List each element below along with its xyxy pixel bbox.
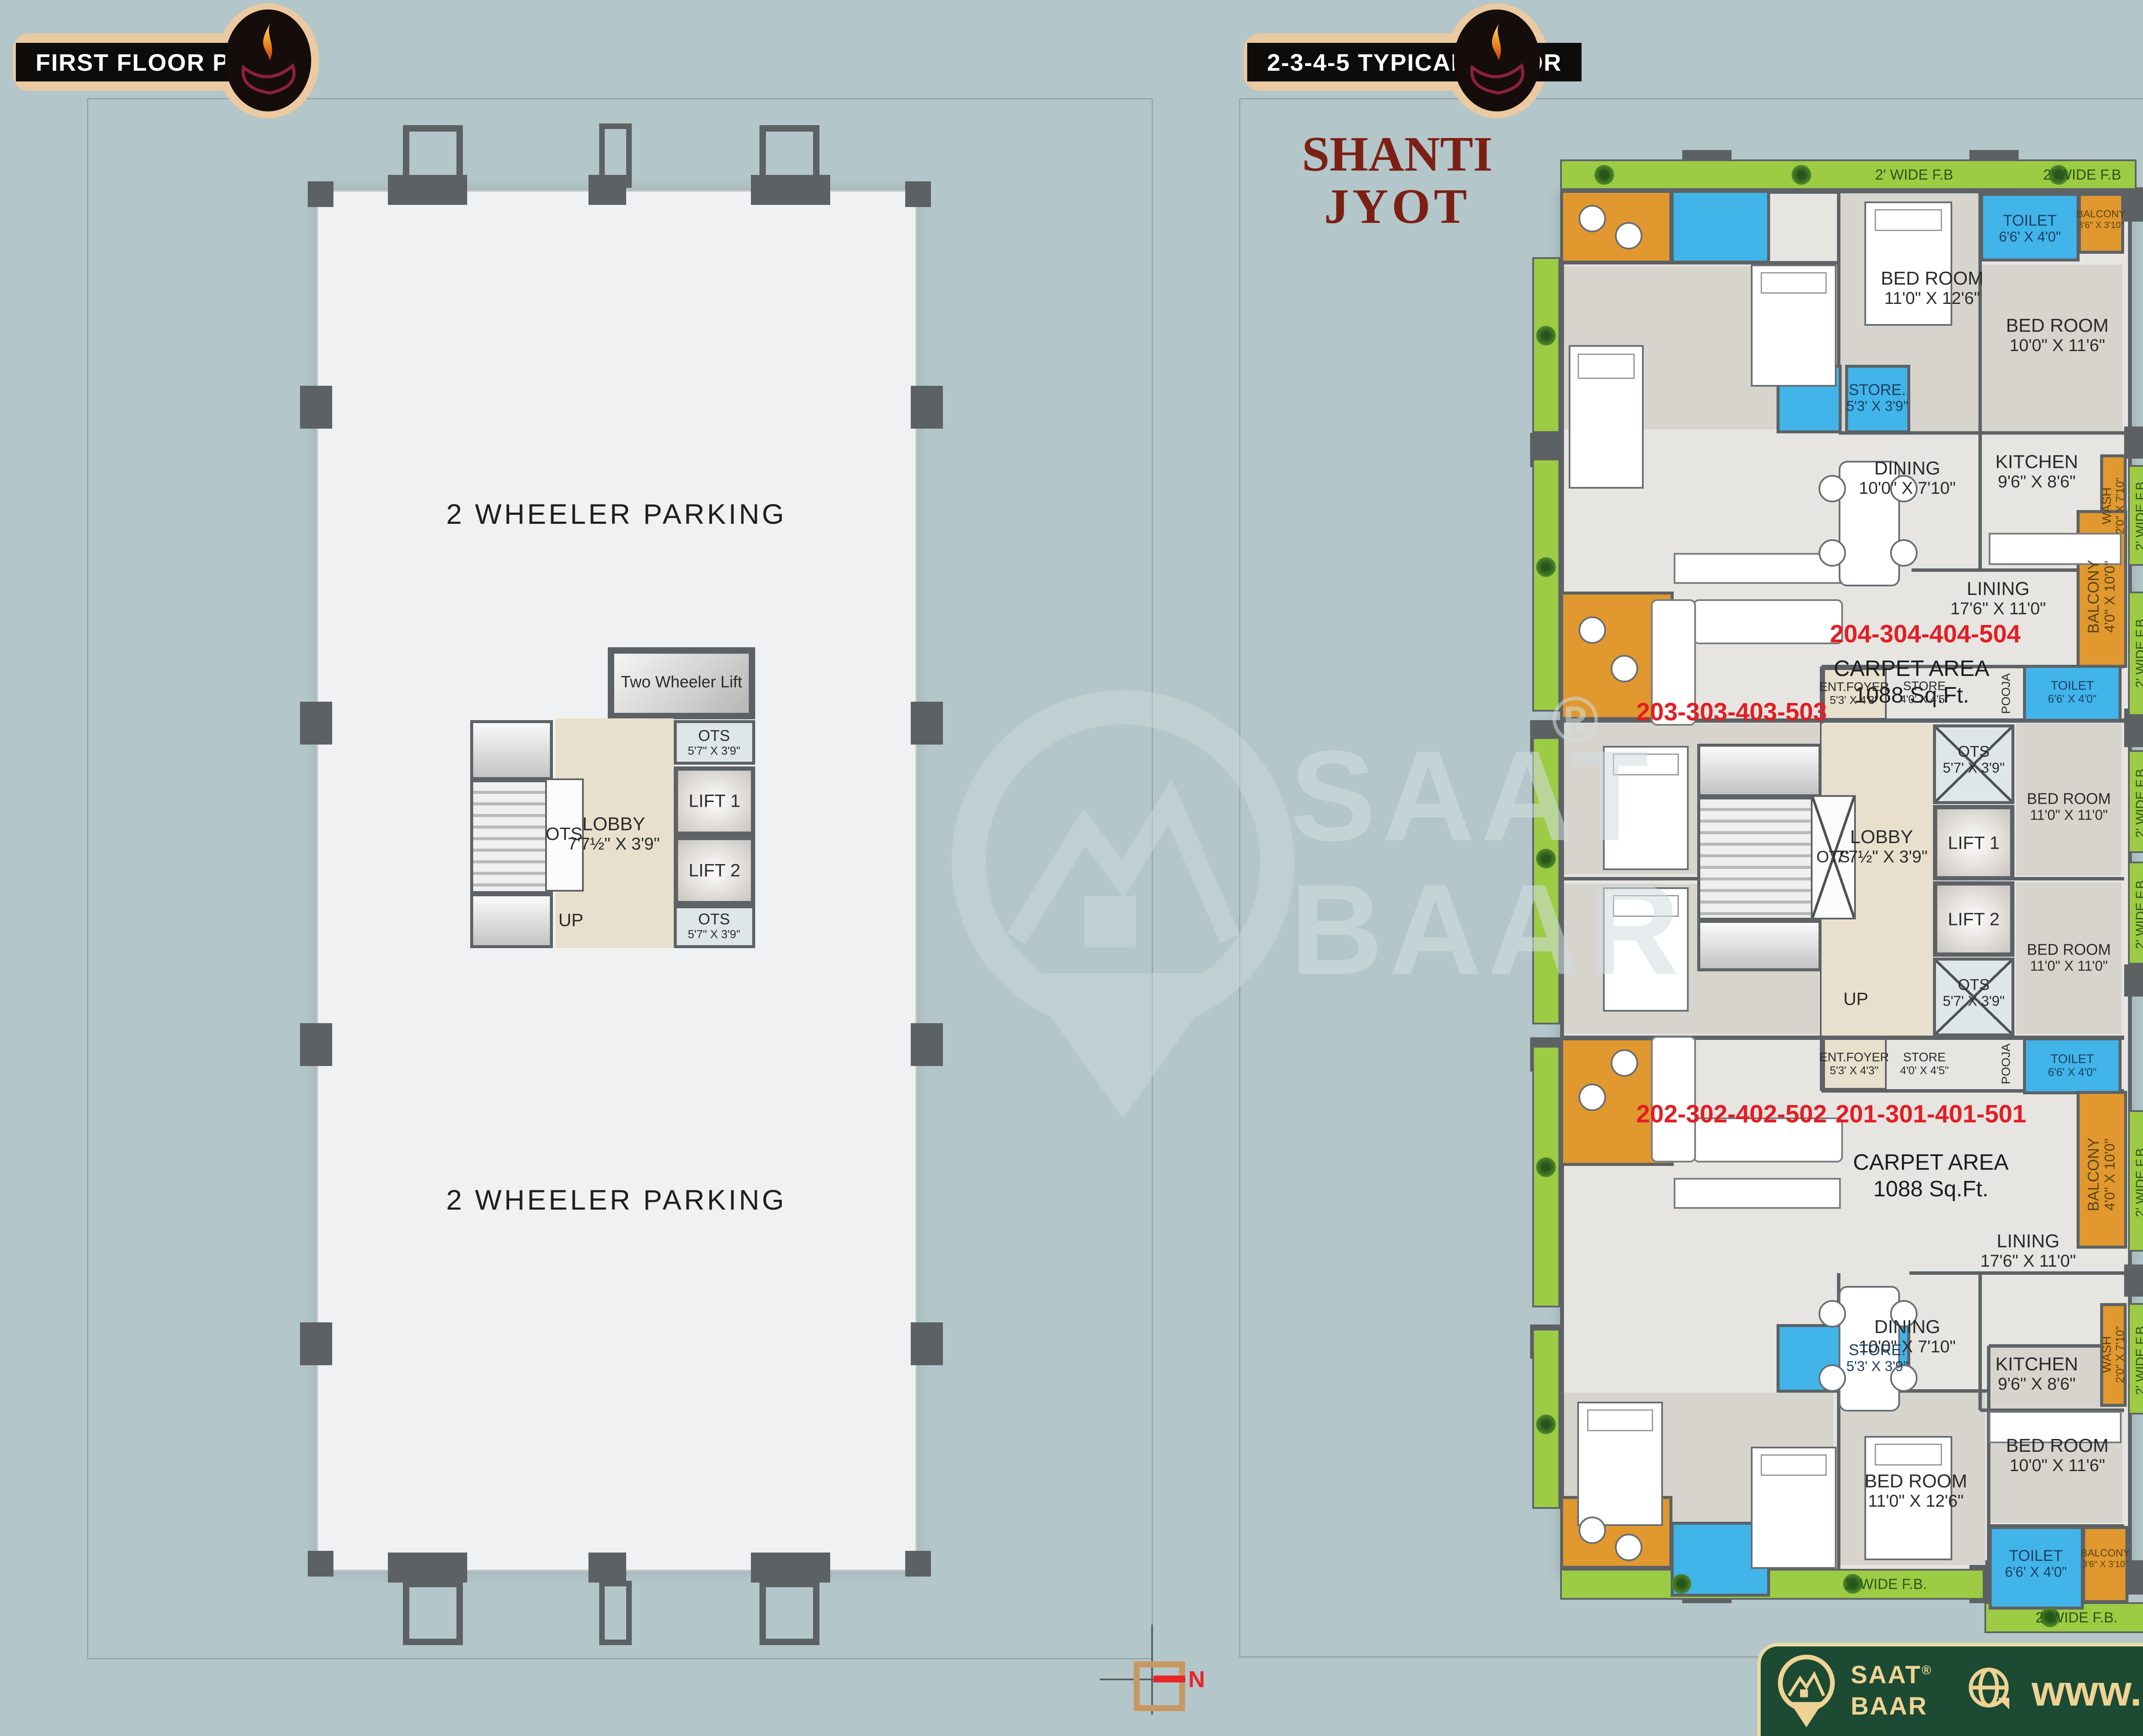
lift1-label: LIFT 1 [689, 790, 741, 811]
two-wheeler-lift-label-1: Two [621, 673, 651, 691]
toilet-mid-bottom-dim: 6'6' X 4'0" [2048, 1066, 2097, 1079]
kitchen-bottom-dim: 9'6" X 8'6" [1995, 1375, 2078, 1394]
ots-core-top-dim: 5'7' X 3'9" [1943, 760, 2005, 776]
fb-label-bottom-2: 2' WIDE F.B. [2035, 1610, 2118, 1626]
toilet-mid-top-label: TOILET [2048, 679, 2097, 693]
lining-bottom-dim: 17'6" X 11'0" [1980, 1252, 2076, 1271]
sofa [1651, 1036, 1696, 1162]
bedroom-204a-label: BED ROOM [1881, 268, 1984, 289]
column [751, 1553, 830, 1583]
apartment-203-number: 203-303-403-503 [1636, 699, 1827, 727]
stair-landing-top [470, 720, 553, 780]
balcony-chair [1615, 1534, 1642, 1561]
store-small-top-dim: 4'0' X 4'5" [1900, 694, 1949, 706]
bedroom-204a-dim: 11'0" X 12'6" [1881, 289, 1984, 308]
balcony-big-top-label: BALCONY [2085, 560, 2102, 634]
bed [1603, 887, 1689, 1012]
toilet-top-left [1671, 190, 1770, 264]
store-small-bottom-dim: 4'0' X 4'5" [1900, 1065, 1949, 1077]
flower-bed-left-3 [1532, 737, 1560, 1024]
fb-right-6: 2' WIDE F.B. [2134, 1322, 2143, 1395]
column [905, 1551, 931, 1577]
plant-icon [1536, 1157, 1556, 1177]
plant-icon [1536, 1415, 1556, 1434]
two-wheeler-lift-label-3: Lift [720, 673, 742, 691]
balcony-chair [1611, 655, 1638, 682]
balcony-bottom-dim: 3'6" X 3'10" [2081, 1559, 2130, 1570]
plant-icon [1792, 165, 1811, 185]
chair [1819, 1364, 1846, 1392]
column [911, 1023, 943, 1066]
ent-foyer-bottom-dim: 5'3' X 4'3" [1819, 1065, 1889, 1077]
toilet-tr-label: TOILET [1999, 212, 2061, 229]
floor-plan-sheet: FIRST FLOOR PLAN 2-3-4-5 TYPICAL FLOOR S… [0, 0, 2143, 1736]
wash-top-dim: 2'0" X 7'10" [2114, 478, 2127, 534]
column [300, 386, 332, 429]
bedroom-204b-label: BED ROOM [2006, 315, 2109, 336]
column-outline [599, 1581, 632, 1645]
column [300, 1023, 332, 1066]
store-top-dim: 5'3' X 3'9" [1846, 399, 1908, 414]
store-bottom-label: STORE. [1846, 1341, 1908, 1358]
balcony-big-bottom-dim: 4'0" X 10'0" [2102, 1138, 2118, 1211]
store-bottom-dim: 5'3' X 3'9" [1846, 1359, 1908, 1375]
balcony-chair [1611, 1049, 1638, 1077]
kitchen-counter [1674, 1178, 1841, 1209]
footer-brand-line2: BAAR [1851, 1692, 1928, 1720]
column [2124, 426, 2143, 459]
plant-icon [1594, 165, 1614, 185]
brand-line2: JYOT [1324, 179, 1470, 234]
chair [1819, 475, 1846, 502]
ots-bottom-dim: 5'7" X 3'9" [688, 928, 741, 941]
fb-right-2: 2' WIDE F.B. [2134, 615, 2143, 688]
column [300, 1322, 332, 1365]
fb-right-4: 2' WIDE F.B. [2134, 877, 2143, 949]
stair-landing-top-right [1697, 744, 1822, 797]
column [308, 181, 333, 207]
column-outline [403, 125, 463, 189]
balcony-chair [1579, 205, 1606, 232]
balcony-big-bottom-label: BALCONY [2085, 1138, 2102, 1211]
ots-core-bottom-dim: 5'7' X 3'9" [1943, 994, 2005, 1009]
ots-core-bottom-label: OTS [1943, 976, 2005, 993]
bedroom-core-bottom-label: BED ROOM [2027, 941, 2111, 958]
chair [1819, 1300, 1846, 1328]
fb-right-5: 2' WIDE F.B. [2134, 1144, 2143, 1217]
ent-foyer-bottom-label: ENT.FOYER [1819, 1051, 1889, 1064]
fb-label-top-2: 2' WIDE F.B [2043, 167, 2121, 183]
lift2-label: LIFT 2 [689, 860, 741, 880]
lift1-right-label: LIFT 1 [1948, 832, 2000, 853]
pooja-top-label: POOJA [1999, 673, 2012, 714]
brand-line1: SHANTI [1302, 127, 1493, 182]
toilet-tr-dim: 6'6' X 4'0" [1999, 229, 2061, 245]
bedroom-core-top-dim: 11'0" X 11'0" [2027, 808, 2111, 823]
diya-lamp-icon [1453, 9, 1541, 114]
fb-label-bottom-1: 2' WIDE F.B. [1845, 1576, 1927, 1592]
column-outline [599, 123, 632, 188]
bedroom-201a-label: BED ROOM [1864, 1471, 1967, 1492]
fb-right-1: 2' WIDE F.B. [2134, 478, 2143, 550]
balcony-chair [1615, 222, 1642, 249]
balcony-big-top-dim: 4'0" X 10'0" [2102, 560, 2118, 634]
lift2-right-label: LIFT 2 [1948, 909, 2000, 929]
balcony-top-left [1560, 190, 1672, 264]
balcony-chair [1579, 1517, 1606, 1544]
balcony-tr-dim: 3'6" X 3'10" [2077, 220, 2126, 231]
column [2124, 187, 2143, 222]
toilet-bottom-label: TOILET [2005, 1547, 2067, 1564]
ots-bottom-label: OTS [688, 911, 741, 928]
registered-icon: ® [1922, 1664, 1933, 1678]
stair-landing-bottom-right [1697, 920, 1822, 971]
column [2124, 1264, 2143, 1297]
ots-top-dim: 5'7" X 3'9" [688, 745, 741, 757]
bedroom-201a-dim: 11'0" X 12'6" [1864, 1492, 1967, 1511]
bedroom-core-bottom-dim: 11'0" X 11'0" [2027, 958, 2111, 974]
ots-stairs-right-label: OTS [1816, 848, 1850, 867]
column-outline [759, 1581, 819, 1645]
toilet-mid-bottom-label: TOILET [2048, 1052, 2097, 1066]
store-top-label: STORE. [1846, 381, 1908, 398]
diya-lamp-icon [224, 9, 312, 114]
chair [1890, 539, 1918, 567]
column [388, 1553, 467, 1583]
ent-foyer-top-label: ENT.FOYER [1819, 680, 1889, 694]
footer-brand-line1: SAAT [1851, 1661, 1922, 1689]
north-compass-icon [1134, 1661, 1185, 1711]
fb-label-top-1: 2' WIDE F.B [1875, 167, 1953, 183]
column [300, 702, 332, 745]
flower-bed-left-2 [1532, 459, 1560, 712]
column [588, 1553, 626, 1583]
up-right-label: UP [1843, 988, 1868, 1009]
two-wheeler-lift-label-2: Wheeler [655, 673, 716, 691]
toilet-mid-top-dim: 6'6' X 4'0" [2048, 693, 2097, 706]
bedroom-204b-dim: 10'0" X 11'6" [2006, 336, 2109, 355]
parking-label-bottom: 2 WHEELER PARKING [446, 1184, 786, 1216]
dining-bottom-label: DINING [1859, 1316, 1956, 1337]
staircase [470, 779, 553, 894]
balcony-chair [1579, 1084, 1606, 1111]
wall [2014, 877, 2124, 880]
bedroom-core-top-label: BED ROOM [2027, 790, 2111, 807]
column-outline [403, 1581, 463, 1645]
carpet-area-201: CARPET AREA [1853, 1150, 2008, 1175]
lining-top-label: LINING [1950, 578, 2046, 599]
chair [1819, 539, 1846, 567]
globe-icon [1963, 1663, 2014, 1717]
column [308, 1551, 333, 1577]
kitchen-top-dim: 9'6" X 8'6" [1995, 472, 2078, 492]
north-arrow-icon [1153, 1676, 1185, 1682]
dining-top-dim: 10'0" X 7'10" [1859, 479, 1956, 498]
fb-right-3: 2' WIDE F.B. [2134, 765, 2143, 838]
column [911, 1322, 943, 1365]
column [905, 181, 931, 207]
bed [1603, 746, 1689, 870]
wash-bottom-label: WASH [2100, 1326, 2114, 1383]
plant-icon [1536, 326, 1556, 345]
north-label: N [1189, 1667, 1205, 1692]
ent-foyer-top-dim: 5'3' X 4'3" [1819, 694, 1889, 707]
kitchen-top-label: KITCHEN [1995, 451, 2078, 472]
bed [1751, 264, 1837, 387]
kitchen-counter [1674, 553, 1841, 584]
pooja-bottom-label: POOJA [1999, 1044, 2012, 1084]
column [911, 386, 943, 429]
store-small-top-label: STORE [1900, 679, 1949, 693]
staircase-right [1697, 796, 1822, 921]
bed [1751, 1447, 1837, 1569]
footer-website[interactable]: www.saatbaar.com [2032, 1667, 2143, 1716]
bed [1577, 1402, 1663, 1526]
up-label: UP [558, 910, 583, 930]
plant-icon [1536, 849, 1556, 868]
footer-pin-logo-icon [1769, 1649, 1844, 1736]
balcony-tr-label: BALCONY [2077, 209, 2126, 220]
carpet-area-201-value: 1088 Sq.Ft. [1873, 1177, 1989, 1201]
ots-core-top-label: OTS [1943, 743, 2005, 760]
balcony-chair [1579, 616, 1606, 644]
store-small-bottom-label: STORE [1900, 1051, 1949, 1064]
ots-top-label: OTS [688, 727, 741, 745]
apartment-204-number: 204-304-404-504 [1830, 621, 2020, 649]
brand-logo: SHANTI JYOT [1299, 129, 1496, 233]
column [911, 702, 943, 745]
plant-icon [1536, 557, 1556, 577]
lobby-right-label: LOBBY [1836, 826, 1928, 847]
lining-top-dim: 17'6" X 11'0" [1950, 599, 2046, 619]
column-outline [759, 125, 819, 189]
ots-stairs-label: OTS [546, 823, 582, 844]
wall [1909, 1271, 2124, 1275]
kitchen-bottom-label: KITCHEN [1995, 1354, 2078, 1375]
parking-label-top: 2 WHEELER PARKING [446, 499, 786, 530]
balcony-bottom-label: BALCONY [2081, 1548, 2130, 1559]
plant-icon [1672, 1574, 1691, 1594]
footer-brand-text: SAAT® BAAR [1851, 1660, 1933, 1722]
wall [1978, 433, 1982, 570]
sofa [1693, 599, 1843, 644]
carpet-area-204: CARPET AREA [1834, 656, 1989, 681]
apartment-201-number: 201-301-401-501 [1835, 1101, 2026, 1129]
column [2124, 964, 2143, 997]
wash-top-label: WASH [2100, 478, 2114, 534]
dining-top-label: DINING [1859, 458, 1956, 479]
bed [1569, 345, 1644, 489]
bedroom-201b-label: BED ROOM [2006, 1435, 2109, 1456]
lining-bottom-label: LINING [1980, 1231, 2076, 1252]
stair-landing-bottom [470, 893, 553, 948]
apartment-202-number: 202-302-402-502 [1636, 1101, 1827, 1129]
toilet-bottom-dim: 6'6' X 4'0" [2005, 1565, 2067, 1580]
wash-bottom-dim: 2'0" X 7'10" [2114, 1326, 2127, 1383]
bedroom-201b-dim: 10'0" X 11'6" [2006, 1456, 2109, 1475]
